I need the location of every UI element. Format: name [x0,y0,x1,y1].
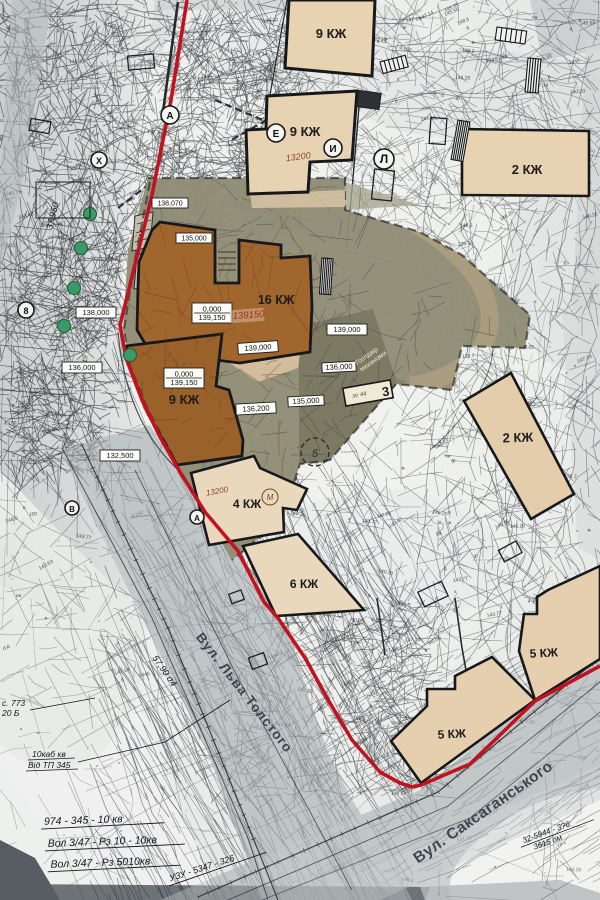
svg-text:8: 8 [23,306,28,316]
svg-text:5: 5 [312,448,319,460]
svg-text:139150: 139150 [232,309,265,322]
svg-text:И: И [329,144,336,155]
svg-text:136,200: 136,200 [242,403,270,413]
svg-text:в: в [23,505,26,511]
svg-text:9 КЖ: 9 КЖ [290,124,321,139]
svg-text:5 КЖ: 5 КЖ [529,645,558,660]
svg-text:10каб кв: 10каб кв [32,749,66,759]
svg-text:135,000: 135,000 [292,396,320,406]
svg-text:145.55: 145.55 [580,20,596,27]
svg-text:16 КЖ: 16 КЖ [258,293,295,307]
svg-text:139,000: 139,000 [244,342,272,353]
svg-text:146.20: 146.20 [455,75,471,82]
svg-text:136,000: 136,000 [68,363,95,372]
svg-text:132,500: 132,500 [106,451,133,460]
svg-text:146.20: 146.20 [510,523,526,530]
svg-text:а: а [349,746,352,752]
svg-text:9 КЖ: 9 КЖ [169,392,200,407]
svg-text:Е: Е [273,129,280,140]
svg-text:140.20: 140.20 [566,867,582,873]
svg-text:139,150: 139,150 [198,313,225,322]
svg-text:Від ТП 345: Від ТП 345 [28,760,71,770]
svg-text:136,000: 136,000 [325,362,353,372]
svg-text:4.150: 4.150 [108,267,121,273]
svg-text:4.150: 4.150 [4,420,17,427]
svg-text:150: 150 [29,511,38,518]
svg-text:6 КЖ: 6 КЖ [290,577,318,591]
svg-text:5 КЖ: 5 КЖ [437,726,466,741]
svg-text:с. 773: с. 773 [2,698,25,708]
svg-text:139.14: 139.14 [252,51,268,58]
svg-text:138,000: 138,000 [82,308,109,317]
svg-text:б: б [3,646,6,652]
svg-text:148.5: 148.5 [460,223,473,229]
svg-text:б: б [12,453,15,459]
svg-text:М: М [267,493,274,502]
svg-text:138,070: 138,070 [157,200,182,207]
svg-text:б: б [441,607,444,613]
svg-text:А: А [194,514,200,523]
svg-text:139,150: 139,150 [170,378,197,387]
svg-text:9: 9 [587,400,590,406]
svg-text:Х: Х [96,156,102,166]
svg-text:б: б [441,93,444,99]
svg-text:кж: кж [16,593,22,599]
svg-text:В: В [69,505,75,514]
svg-text:4 КЖ: 4 КЖ [233,497,261,511]
svg-text:135,000: 135,000 [181,235,206,242]
svg-text:Л: Л [380,152,388,166]
svg-text:2 КЖ: 2 КЖ [502,429,533,445]
svg-text:А: А [166,111,173,122]
svg-text:139,000: 139,000 [333,325,360,334]
svg-text:146.20: 146.20 [69,59,85,65]
svg-text:9 КЖ: 9 КЖ [316,26,347,41]
svg-text:20 Б: 20 Б [1,708,20,718]
svg-text:а: а [136,135,139,141]
svg-text:2 КЖ: 2 КЖ [512,162,543,177]
